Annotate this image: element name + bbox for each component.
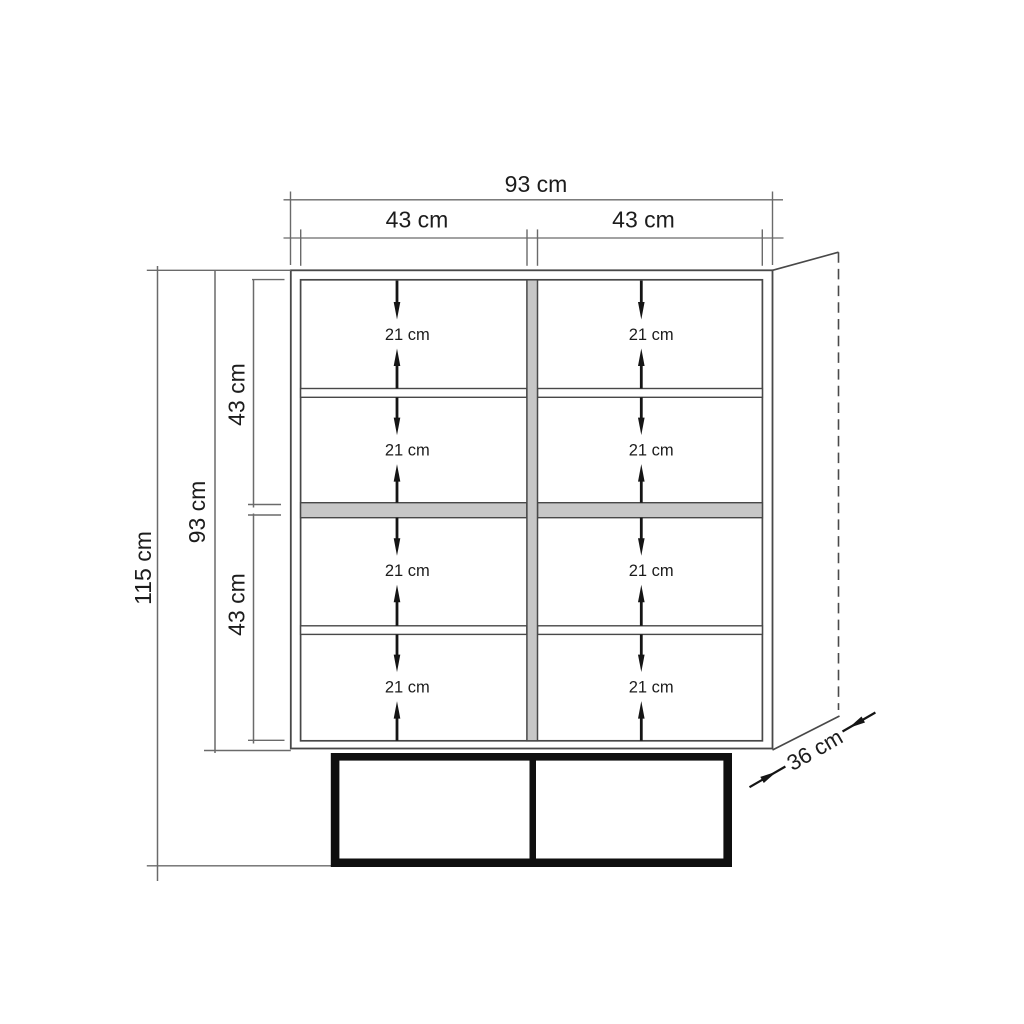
svg-text:115 cm: 115 cm [130, 531, 156, 605]
svg-text:43 cm: 43 cm [224, 363, 250, 426]
svg-text:21 cm: 21 cm [629, 326, 674, 344]
svg-text:21 cm: 21 cm [629, 678, 674, 696]
svg-text:21 cm: 21 cm [385, 326, 430, 344]
svg-text:21 cm: 21 cm [629, 562, 674, 580]
svg-text:93 cm: 93 cm [505, 171, 568, 197]
svg-text:93 cm: 93 cm [184, 481, 210, 544]
svg-text:21 cm: 21 cm [385, 562, 430, 580]
svg-text:43 cm: 43 cm [386, 207, 449, 233]
svg-text:21 cm: 21 cm [629, 441, 674, 459]
svg-text:21 cm: 21 cm [385, 678, 430, 696]
svg-text:43 cm: 43 cm [224, 573, 250, 636]
svg-text:43 cm: 43 cm [612, 207, 675, 233]
svg-text:21 cm: 21 cm [385, 441, 430, 459]
